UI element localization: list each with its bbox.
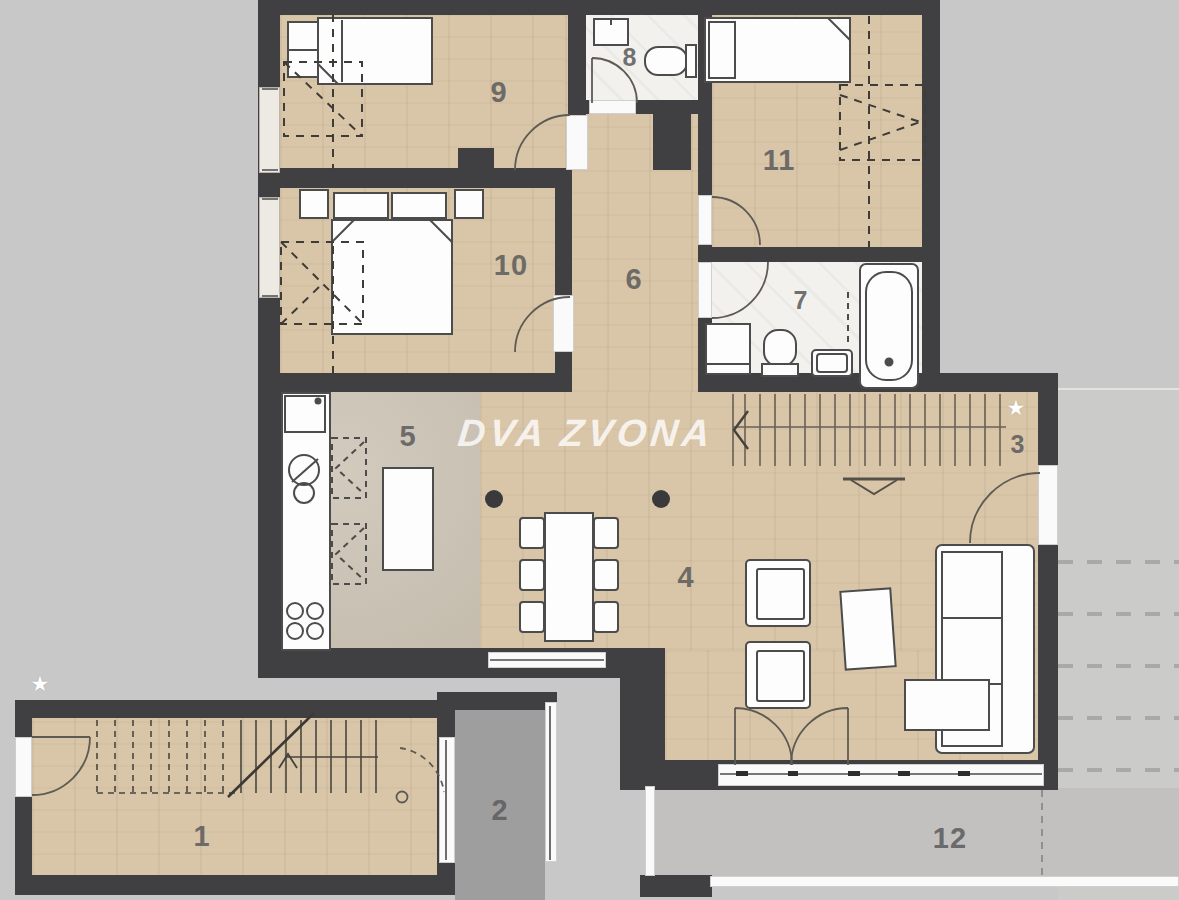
wall xyxy=(15,700,32,895)
exterior-boundary-line xyxy=(1058,388,1179,390)
kitchen-window xyxy=(488,652,606,668)
wall xyxy=(458,148,494,188)
wall xyxy=(258,392,282,678)
room-9-door-opening xyxy=(566,115,588,170)
utility-shaft xyxy=(653,108,691,170)
roof-hatch-line xyxy=(1058,664,1179,668)
roof-hatch-line xyxy=(1058,716,1179,720)
kitchen-5-floor xyxy=(282,392,480,650)
floor-plan: DVA ZVONA ★ ★ 1 2 3 4 5 6 7 8 9 10 11 12 xyxy=(0,0,1179,900)
wall xyxy=(15,700,455,718)
room-11-door-opening xyxy=(698,195,712,245)
roof-hatch-line xyxy=(1058,560,1179,564)
bath-7-door-opening xyxy=(698,262,712,318)
room-label-9: 9 xyxy=(490,76,507,109)
wall xyxy=(258,373,572,392)
wall xyxy=(258,168,572,188)
wc-8-floor xyxy=(586,13,698,103)
room-label-12: 12 xyxy=(933,822,967,855)
bathroom-7-floor xyxy=(712,262,922,378)
room-9-floor xyxy=(280,13,572,170)
wall xyxy=(620,648,665,790)
room-label-8: 8 xyxy=(623,43,638,72)
wall xyxy=(698,316,712,378)
roof-hatch-line xyxy=(1058,612,1179,616)
room-1-floor xyxy=(32,718,437,877)
room-10-window xyxy=(259,197,280,298)
room-11-floor xyxy=(712,13,922,253)
room-10-floor xyxy=(280,188,572,375)
entry-door-opening xyxy=(15,737,32,797)
wall xyxy=(15,875,455,895)
room-9-window xyxy=(259,87,280,173)
wall xyxy=(258,0,940,15)
room-2-window xyxy=(545,702,557,862)
room-label-4: 4 xyxy=(677,561,694,594)
wall xyxy=(568,0,586,115)
room-1-window xyxy=(439,737,455,863)
room-label-3: 3 xyxy=(1011,430,1026,459)
star-marker: ★ xyxy=(1007,396,1026,420)
room-10-door-opening xyxy=(553,295,574,352)
side-door-opening xyxy=(1038,465,1058,545)
terrace-12-left-edge xyxy=(645,786,655,876)
wall xyxy=(437,692,557,710)
room-label-7: 7 xyxy=(794,286,809,315)
roof-hatch-line xyxy=(1058,768,1179,772)
room-label-11: 11 xyxy=(763,144,796,177)
room-label-10: 10 xyxy=(494,249,528,282)
terrace-12-floor xyxy=(653,788,1179,877)
room-label-1: 1 xyxy=(193,820,210,853)
watermark: DVA ZVONA xyxy=(456,412,716,455)
wall xyxy=(922,0,940,392)
wall xyxy=(1038,373,1058,790)
room-label-2: 2 xyxy=(491,794,508,827)
wall xyxy=(640,875,712,897)
wall xyxy=(258,0,280,392)
wc-8-door-opening xyxy=(589,100,636,114)
room-label-6: 6 xyxy=(625,263,642,296)
star-marker: ★ xyxy=(31,672,50,696)
terrace-12-bottom-edge xyxy=(710,876,1179,887)
wall xyxy=(698,247,922,262)
wall xyxy=(698,373,1058,392)
living-room-window xyxy=(718,764,1044,786)
room-label-5: 5 xyxy=(399,420,416,453)
living-4-lower-floor xyxy=(665,650,1038,762)
